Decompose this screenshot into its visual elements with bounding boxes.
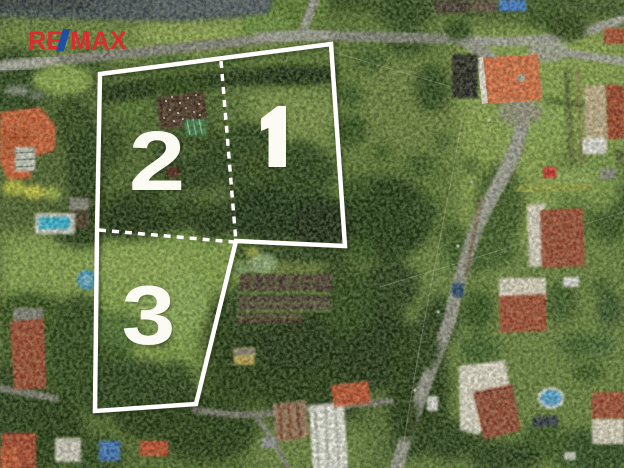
svg-text:2: 2 bbox=[129, 114, 186, 208]
svg-text:3: 3 bbox=[122, 269, 176, 363]
svg-text:MAX: MAX bbox=[70, 27, 127, 55]
